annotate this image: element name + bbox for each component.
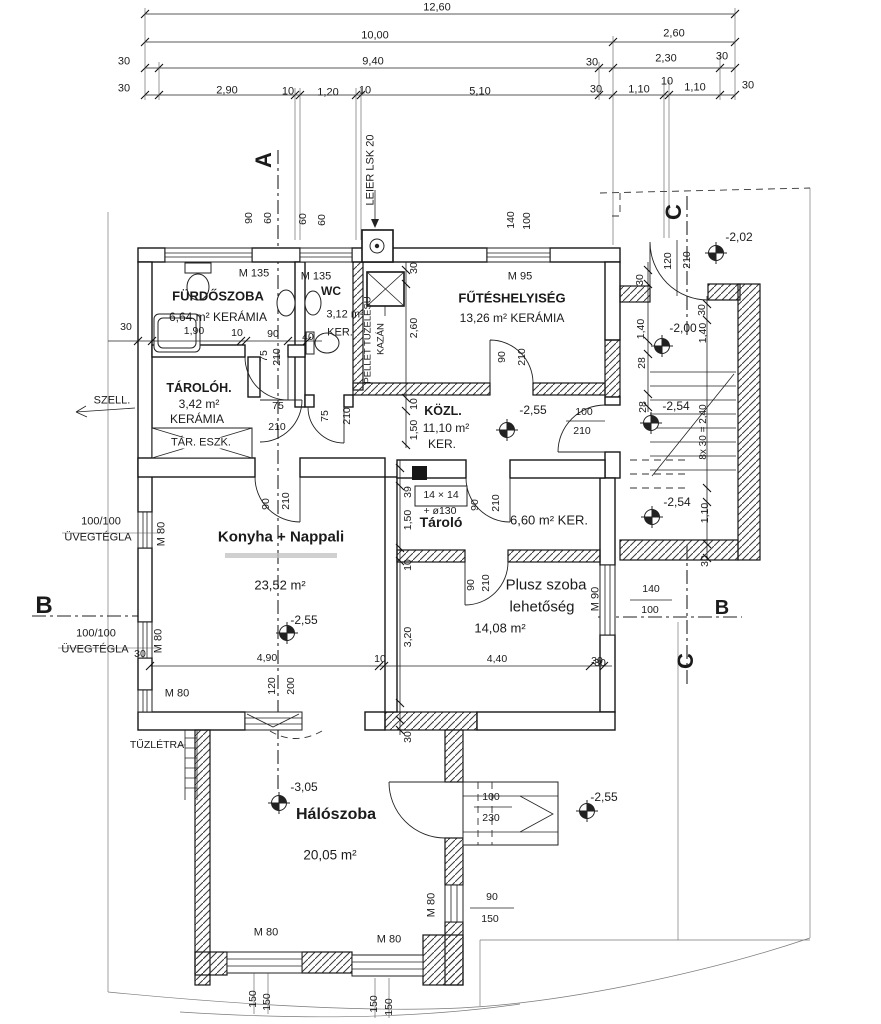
porch-stairs [630,372,736,488]
scan-smudge [225,553,337,558]
toilet-bathroom [185,263,211,300]
window-m90 [600,565,615,635]
toilet-wc [306,332,339,354]
window-90-150 [445,885,463,922]
dimension-chains [141,8,739,245]
sink-wc [305,291,321,315]
sink-bathroom [277,290,295,316]
window-m95 [487,248,550,262]
window-m135-2 [300,248,352,262]
window-m135-1 [165,248,252,262]
bathtub [154,314,200,352]
entrance-porch [620,284,760,560]
window-glassblock-1 [138,512,152,548]
floor-plan-drawing [0,0,881,1024]
bedroom-walls [195,730,463,985]
window-m80-left [138,690,152,712]
exterior-walls [138,248,620,730]
window-m80-bottom-2 [352,955,423,976]
window-glassblock-2 [138,622,152,658]
level-marker-symbols [268,242,727,822]
exit-landing [463,782,558,845]
ventilation-arrow [76,406,135,417]
window-120-200 [245,712,302,730]
flue-block [412,466,427,480]
window-m80-bottom-1 [227,952,302,973]
interior-walls [138,262,605,712]
pellet-boiler [367,272,404,316]
flue-size-box [415,486,467,506]
floor-plan-canvas: 12,6010,002,60309,40302,3030302,90101,20… [0,0,881,1024]
chimney [362,190,393,262]
storage-equipment-box [152,428,252,458]
